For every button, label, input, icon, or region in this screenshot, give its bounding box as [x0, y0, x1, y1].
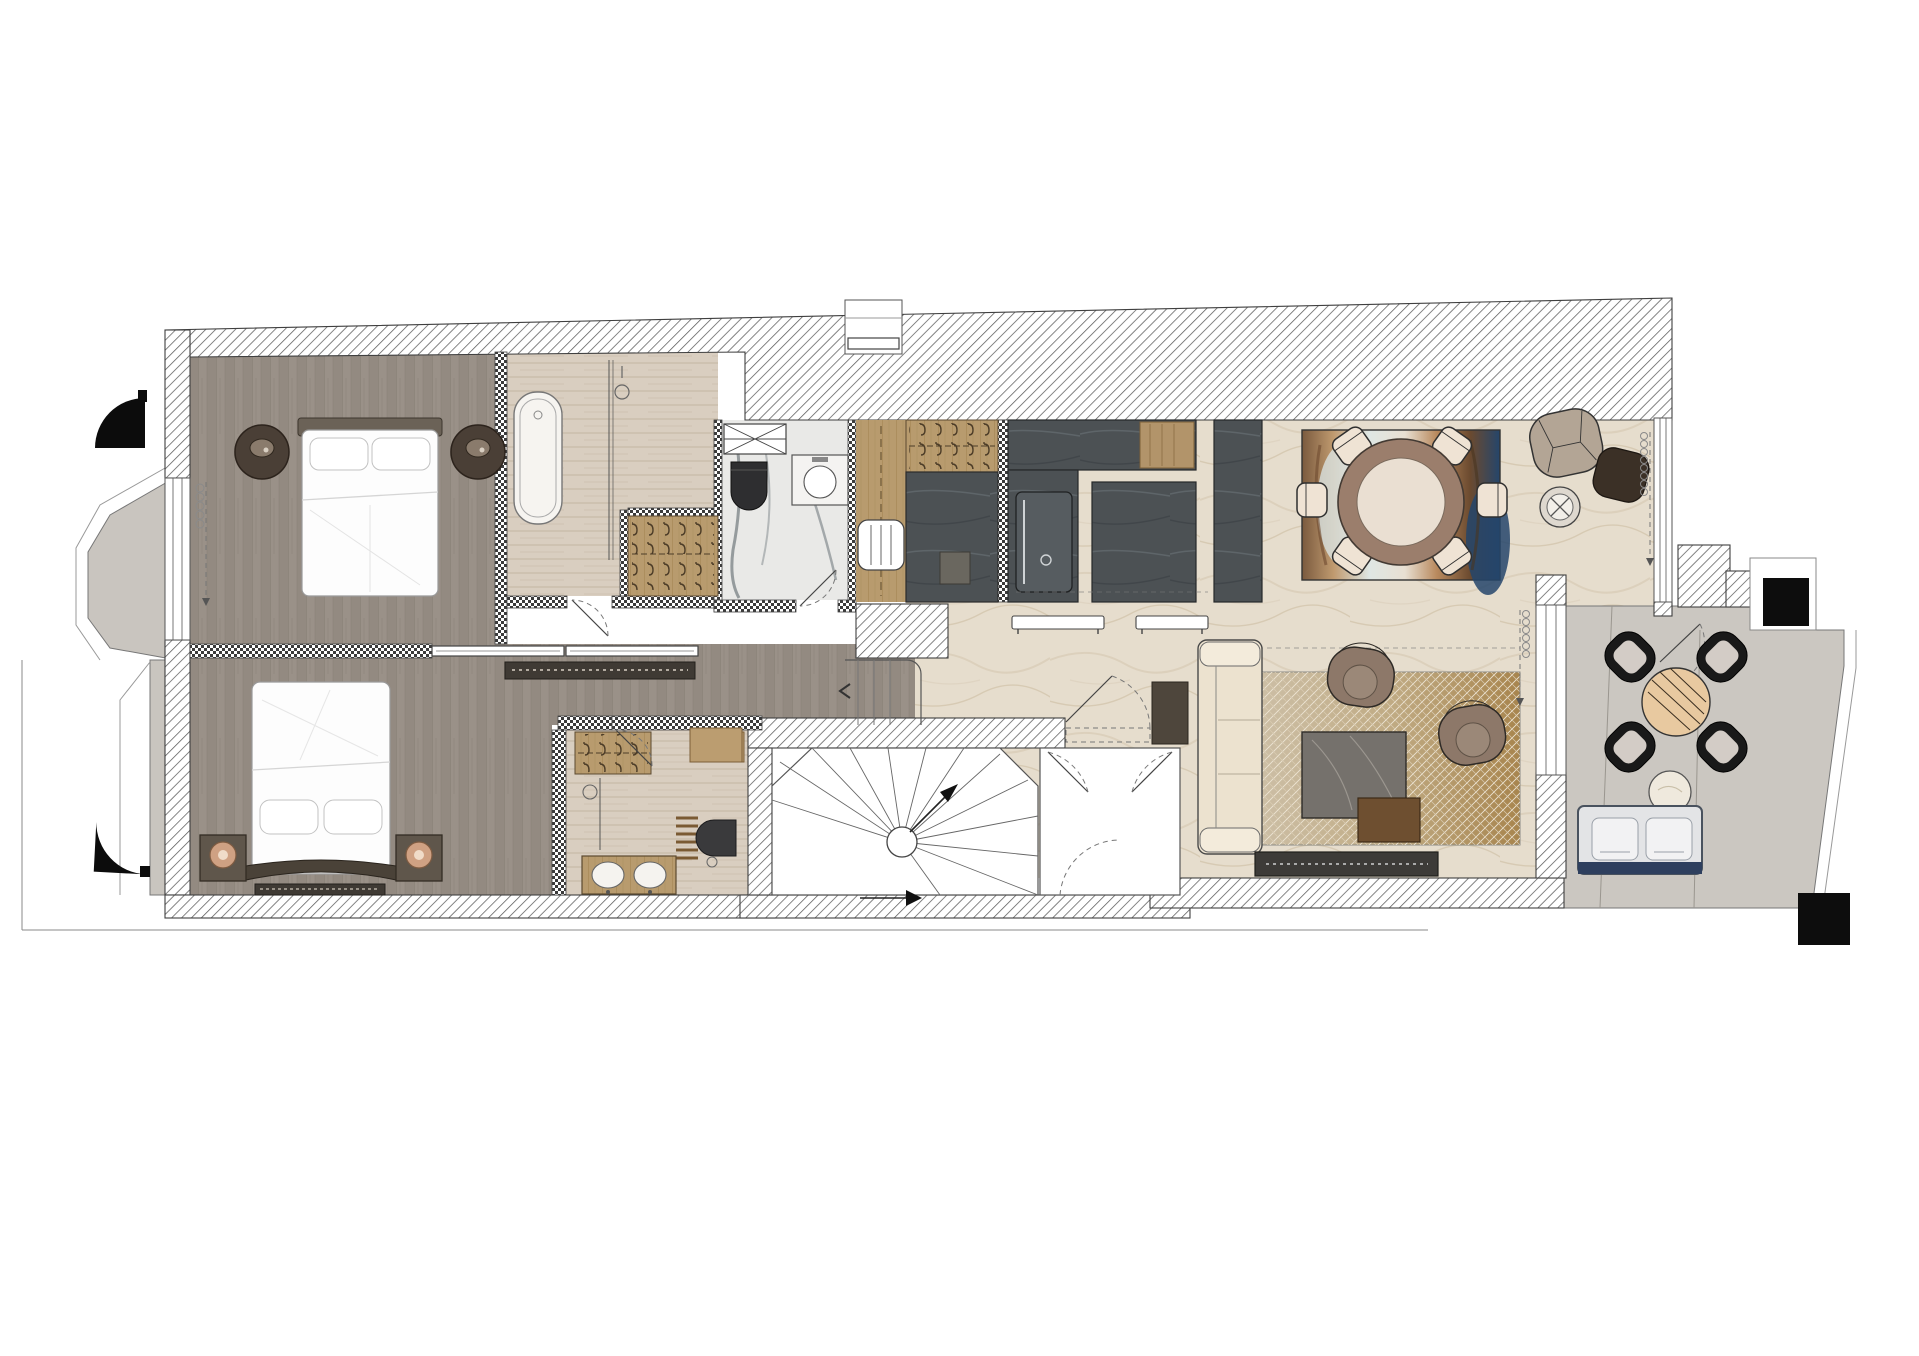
wc-toilet: [731, 462, 767, 510]
nightstand-round-right: [451, 425, 505, 479]
awning-icon-bottom: [94, 822, 150, 877]
tall-cabinet: [1214, 420, 1262, 602]
entry-door: [845, 300, 902, 354]
vanity-double-sink: [582, 856, 676, 894]
nightstand-square-right: [396, 835, 442, 881]
bed2-king-bed: [246, 682, 396, 880]
dark-console: [505, 662, 695, 679]
side-table-x-icon: [1540, 487, 1580, 527]
tv-console: [1255, 852, 1438, 876]
wardrobe1: Walk-in wardrobe: [628, 516, 718, 596]
coffee-table-wood: [1358, 798, 1420, 842]
dining-table: [1338, 439, 1464, 565]
towel-radiator: [858, 520, 904, 570]
nightstand-square-left: [200, 835, 246, 881]
stair-newel: [887, 827, 917, 857]
window-lounge-right: [1654, 418, 1672, 602]
entry: [856, 420, 998, 602]
terrace-bench: [1578, 806, 1702, 874]
terrace-table: [1642, 668, 1710, 736]
dining: Dining area: [1297, 424, 1510, 595]
coat-closet: [906, 420, 998, 472]
window-left: [165, 478, 190, 640]
pillar-black-bottom: [1798, 893, 1850, 945]
radiator-icon: [724, 424, 786, 454]
wc-basin: [792, 455, 848, 505]
pillar-black: [1750, 558, 1816, 630]
stair-entry-bench: [690, 728, 742, 762]
bathroom1-door: [572, 600, 608, 636]
bathtub: [514, 392, 562, 524]
sofa: [1198, 640, 1262, 854]
window-living-right: [1536, 605, 1566, 775]
awning-icon-top: [95, 390, 147, 448]
door-mat: [1152, 682, 1188, 744]
kitchen-island: [1092, 482, 1196, 602]
side-cube-table: [940, 552, 970, 584]
vestibule: Stair vestibule: [1040, 748, 1180, 895]
floor-plan-canvas: Furnished apartment floor plan — top-dow…: [0, 0, 1919, 1356]
trench-heater: [255, 884, 385, 895]
oven-appliance: [1016, 492, 1072, 592]
floor-plan-svg: Furnished apartment floor plan — top-dow…: [0, 0, 1919, 1356]
nightstand-round-left: [235, 425, 289, 479]
bed1-double-bed: [298, 418, 442, 596]
